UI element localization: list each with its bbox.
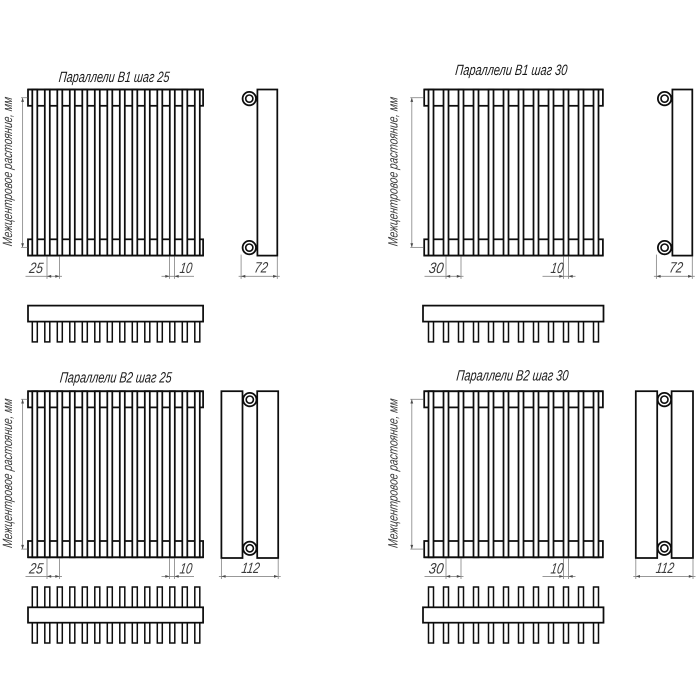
svg-text:Параллели В2 шаг 25: Параллели В2 шаг 25 bbox=[59, 370, 173, 387]
svg-text:30: 30 bbox=[428, 560, 446, 577]
svg-text:72: 72 bbox=[668, 260, 684, 277]
svg-text:Параллели В1 шаг 25: Параллели В1 шаг 25 bbox=[58, 69, 171, 86]
svg-text:10: 10 bbox=[179, 260, 194, 277]
svg-text:25: 25 bbox=[27, 560, 44, 577]
svg-text:30: 30 bbox=[428, 260, 446, 277]
svg-text:Межцентровое растояние, мм: Межцентровое растояние, мм bbox=[0, 95, 15, 247]
svg-text:112: 112 bbox=[655, 560, 676, 577]
svg-text:Межцентровое растояние, мм: Межцентровое растояние, мм bbox=[0, 397, 15, 549]
svg-text:10: 10 bbox=[550, 560, 565, 577]
svg-text:Межцентровое растояние, мм: Межцентровое растояние, мм bbox=[386, 397, 401, 549]
svg-text:Параллели В1 шаг 30: Параллели В1 шаг 30 bbox=[454, 62, 568, 79]
svg-text:10: 10 bbox=[179, 560, 194, 577]
svg-text:Параллели В2 шаг 30: Параллели В2 шаг 30 bbox=[456, 368, 570, 385]
svg-text:10: 10 bbox=[550, 260, 565, 277]
svg-text:112: 112 bbox=[240, 560, 261, 577]
svg-text:Межцентровое растояние, мм: Межцентровое растояние, мм bbox=[386, 95, 401, 247]
svg-text:25: 25 bbox=[27, 260, 44, 277]
svg-text:72: 72 bbox=[253, 260, 269, 277]
